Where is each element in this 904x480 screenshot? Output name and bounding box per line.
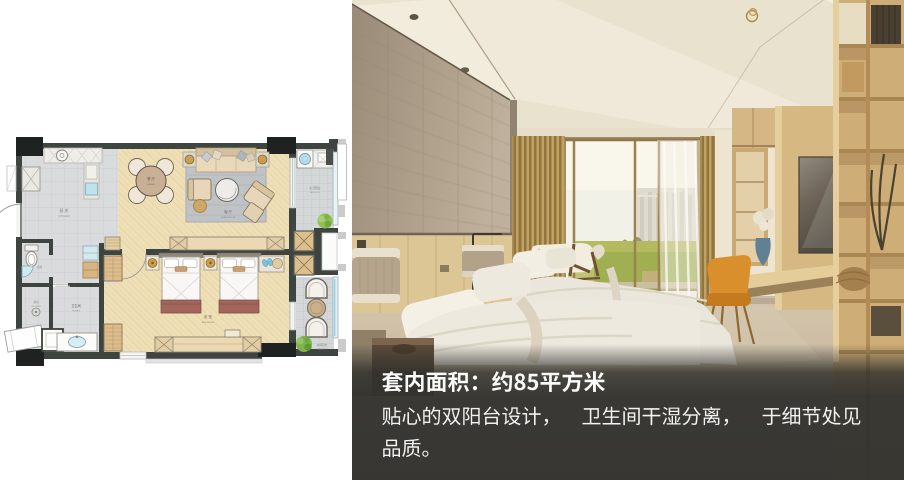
svg-text:BALCONY: BALCONY (317, 348, 327, 351)
svg-text:餐 厅: 餐 厅 (147, 176, 155, 181)
svg-text:BALCONY: BALCONY (310, 191, 320, 194)
svg-text:LIVING ROOM: LIVING ROOM (221, 217, 236, 219)
svg-text:BED ROOM: BED ROOM (202, 322, 214, 324)
svg-text:座厕: 座厕 (37, 265, 43, 269)
svg-text:厨 房: 厨 房 (59, 207, 68, 213)
svg-text:生活阳台: 生活阳台 (309, 186, 320, 190)
svg-text:卧 室: 卧 室 (204, 314, 212, 319)
svg-text:淋浴: 淋浴 (33, 300, 39, 304)
svg-text:TOILET: TOILET (72, 311, 80, 313)
svg-text:DINNER: DINNER (147, 184, 156, 186)
svg-text:卫生间: 卫生间 (71, 303, 81, 308)
svg-text:客 厅: 客 厅 (224, 209, 232, 214)
svg-text:KITCHEN: KITCHEN (58, 214, 70, 218)
svg-text:SHOWER: SHOWER (31, 306, 41, 308)
svg-text:休闲阳台: 休闲阳台 (317, 343, 328, 347)
